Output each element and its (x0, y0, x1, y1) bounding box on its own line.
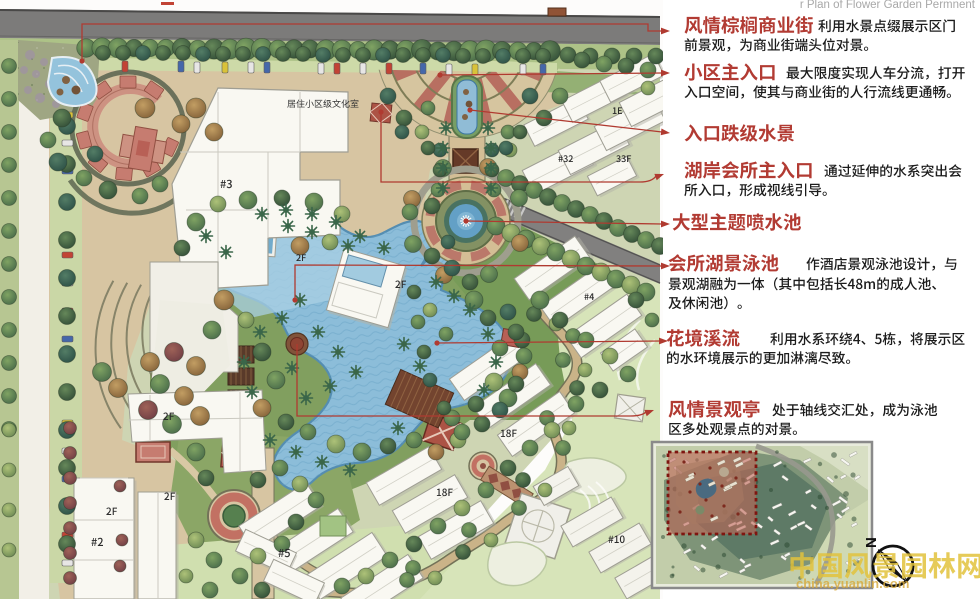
svg-text:N: N (863, 537, 880, 548)
svg-text:china.yuanlin.com: china.yuanlin.com (796, 576, 909, 591)
svg-text:r Plan of Flower Garden Permne: r Plan of Flower Garden Permnent (800, 0, 976, 11)
